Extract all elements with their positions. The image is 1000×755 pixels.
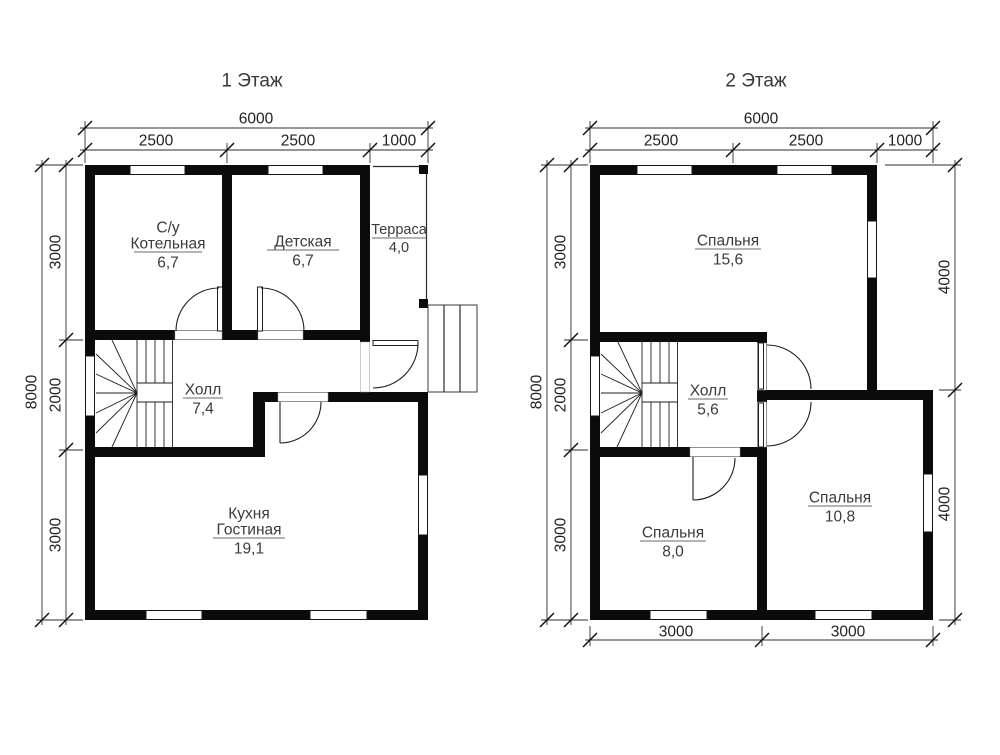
room-name: Терраса (371, 222, 428, 238)
room-area: 6,7 (292, 253, 314, 270)
door-swing (261, 288, 304, 331)
door-leaf (759, 403, 764, 447)
terrace-post (419, 165, 428, 174)
window (86, 356, 95, 416)
dim-label: 1000 (888, 133, 923, 150)
floor1-terrace (373, 165, 477, 392)
dim-label: 3000 (553, 517, 570, 552)
room-name: Спальня (809, 490, 871, 507)
dim-label: 3000 (48, 517, 65, 552)
floor2-doors (693, 343, 811, 500)
room-name: Холл (690, 383, 727, 400)
dim-label: 3000 (553, 234, 570, 269)
dim-label: 3000 (48, 234, 65, 269)
floor2-dimension-left: 8000 3000 2000 3000 (529, 158, 589, 627)
window (868, 221, 877, 278)
dim-label: 2000 (48, 377, 65, 412)
window (310, 611, 367, 620)
floor1-dimension-left: 8000 3000 2000 3000 (24, 158, 84, 627)
floor2-dimension-top: 6000 2500 2500 1000 (583, 111, 940, 164)
window (130, 166, 185, 175)
window (591, 356, 600, 416)
room-area: 4,0 (389, 240, 409, 256)
dim-label: 4000 (937, 259, 954, 294)
dim-label: 2500 (281, 133, 316, 150)
room-name: С/у (156, 220, 180, 237)
floor-plan-drawing: 1 Этаж 6000 2500 2500 1000 (0, 0, 1000, 750)
floor1-title: 1 Этаж (221, 71, 283, 92)
window (146, 611, 202, 620)
dim-label: 8000 (24, 374, 41, 409)
door-swing (767, 402, 811, 446)
room-name: Холл (185, 382, 222, 399)
room-name: Котельная (130, 236, 205, 253)
door-leaf (373, 341, 418, 346)
window (924, 474, 933, 532)
floor1-plan: 1 Этаж 6000 2500 2500 1000 (24, 71, 478, 628)
window (815, 611, 872, 620)
room-area: 7,4 (192, 401, 214, 418)
floor2-dimension-bottom: 3000 3000 (583, 624, 940, 648)
window (419, 475, 428, 535)
dim-label: 6000 (744, 111, 779, 128)
room-area: 10,8 (825, 509, 855, 526)
door-leaf (759, 343, 764, 389)
room-area: 15,6 (713, 252, 743, 269)
floor2-door-openings (690, 343, 767, 457)
room-area: 8,0 (662, 544, 684, 561)
floor1-doors (176, 287, 418, 443)
floor2-staircase (601, 340, 678, 447)
window (777, 166, 832, 175)
room-area: 5,6 (697, 402, 719, 419)
dim-label: 2500 (789, 133, 824, 150)
room-area: 19,1 (234, 541, 264, 558)
porch-steps (428, 305, 477, 392)
door-leaf (218, 287, 223, 331)
door-swing (767, 345, 811, 389)
door-swing (176, 288, 219, 331)
floor2-plan: 2 Этаж 6000 2500 2500 1000 (529, 71, 963, 648)
dim-label: 1000 (382, 133, 417, 150)
door-swing (373, 343, 418, 388)
terrace-post (419, 299, 428, 308)
dim-label: 4000 (937, 486, 954, 521)
floor1-staircase (96, 340, 173, 447)
dim-label: 6000 (239, 111, 274, 128)
room-name: Кухня (228, 506, 269, 523)
room-name: Детская (274, 234, 331, 251)
door-swing (693, 458, 735, 500)
dim-label: 8000 (529, 374, 546, 409)
floor-plan-sheet: 1 Этаж 6000 2500 2500 1000 (0, 0, 1000, 750)
window (650, 611, 707, 620)
room-name: Спальня (697, 233, 759, 250)
dim-label: 2500 (644, 133, 679, 150)
door-leaf (258, 287, 263, 331)
floor1-dimension-top: 6000 2500 2500 1000 (78, 111, 435, 164)
room-name: Спальня (642, 525, 704, 542)
window (268, 166, 323, 175)
room-area: 6,7 (157, 255, 179, 272)
window (637, 166, 692, 175)
floor1-room-labels: С/у Котельная 6,7 Детская 6,7 Терраса 4,… (130, 220, 427, 558)
floor2-title: 2 Этаж (725, 71, 787, 92)
dim-label: 3000 (831, 624, 866, 641)
door-swing (280, 402, 321, 443)
dim-label: 2500 (139, 133, 174, 150)
dim-label: 2000 (553, 377, 570, 412)
room-name: Гостиная (216, 522, 281, 539)
dim-label: 3000 (659, 624, 694, 641)
